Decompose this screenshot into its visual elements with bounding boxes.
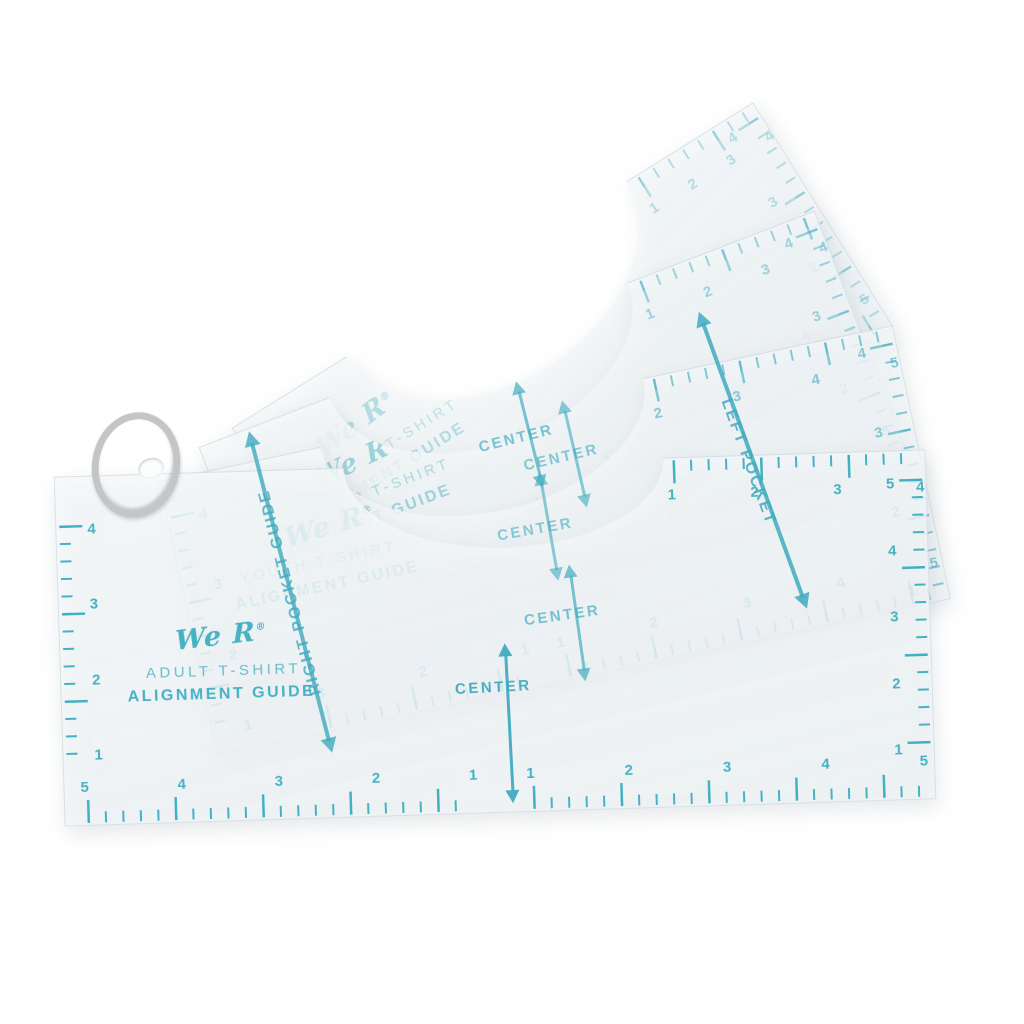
- ruler-number: 4: [888, 542, 897, 559]
- ruler-number: 5: [886, 475, 895, 492]
- guide-sheet-adult: We R® ADULT T-SHIRT ALIGNMENT GUIDE 1234…: [54, 449, 937, 826]
- ruler-number: 3: [833, 481, 842, 498]
- registered-mark: ®: [256, 621, 267, 633]
- ruler-numbers: 4321: [87, 520, 103, 763]
- ruler-number: 1: [469, 767, 478, 784]
- ruler-number: 2: [92, 671, 101, 688]
- ruler-number: 1: [643, 305, 657, 324]
- ruler-number: 3: [89, 596, 98, 613]
- ruler-number: 5: [80, 779, 89, 796]
- brand-logo: We R®: [175, 615, 267, 657]
- ruler-number: 3: [765, 193, 781, 212]
- sheet-title: ADULT T-SHIRT: [146, 660, 302, 682]
- ruler-number: 5: [919, 752, 928, 769]
- ruler-scale-left: 4321: [59, 524, 122, 761]
- product-photo-stage: We R® TODDLER T-SHIRT ALIGNMENT GUIDE 12…: [0, 0, 1024, 1024]
- ruler-scale-right: 54321: [866, 479, 931, 756]
- ruler-number: 2: [372, 770, 381, 787]
- guide-sheet-surface: We R® ADULT T-SHIRT ALIGNMENT GUIDE 1234…: [54, 449, 937, 826]
- brand-text: We R: [175, 616, 256, 657]
- ruler-number: 2: [685, 175, 701, 194]
- ruler-number: 2: [892, 675, 901, 692]
- ruler-number: 4: [782, 234, 796, 253]
- ruler-ticks: [899, 479, 931, 755]
- ruler-number: 2: [624, 762, 633, 779]
- ruler-number: 4: [87, 520, 96, 537]
- ruler-number: 1: [94, 746, 103, 763]
- center-label: CENTER: [455, 677, 532, 698]
- ruler-number: 4: [810, 371, 822, 389]
- ruler-number: 1: [526, 765, 535, 782]
- ruler-scale-bottom-left: 54321: [86, 761, 472, 823]
- ruler-number: 1: [646, 199, 662, 218]
- ruler-number: 4: [821, 756, 830, 773]
- ruler-number: 2: [701, 282, 715, 301]
- ruler-ticks: [59, 525, 89, 761]
- ruler-number: 2: [652, 404, 664, 422]
- ruler-number: 1: [667, 486, 676, 503]
- ruler-number: 4: [177, 776, 186, 793]
- ruler-number: 3: [873, 424, 885, 442]
- ruler-number: 4: [856, 344, 868, 362]
- ruler-scale-bottom-right: 12345: [532, 747, 923, 809]
- ruler-number: 3: [890, 608, 899, 625]
- ruler-number: 3: [723, 759, 732, 776]
- ruler-number: 3: [810, 307, 824, 326]
- ruler-number: 4: [725, 128, 741, 147]
- sheet-subtitle: ALIGNMENT GUIDE: [127, 683, 315, 707]
- ruler-number: 3: [274, 773, 283, 790]
